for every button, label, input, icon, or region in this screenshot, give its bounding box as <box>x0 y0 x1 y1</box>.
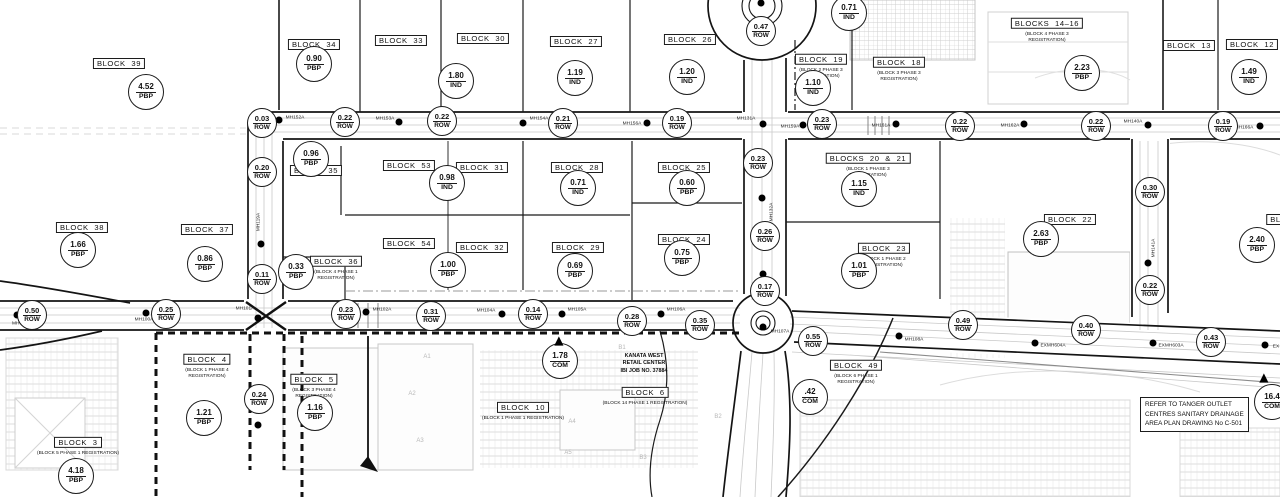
area-value: 1.10 <box>803 79 823 88</box>
flow-arrow-icon: ▶ <box>1257 373 1269 382</box>
area-value: 0.25 <box>157 306 175 315</box>
area-type: IND <box>843 14 855 22</box>
manhole-dot <box>760 324 767 331</box>
area-circle: 0.69PBP <box>557 253 593 289</box>
area-value: 0.22 <box>336 114 354 123</box>
area-type: ROW <box>1142 291 1158 298</box>
area-value: 0.22 <box>433 113 451 122</box>
block-label: BLOCK 12 <box>1226 34 1278 52</box>
manhole-label: MH162A <box>1001 124 1020 129</box>
area-value: 0.43 <box>1202 334 1220 343</box>
area-type: IND <box>853 190 865 198</box>
area-type: PBP <box>304 160 318 168</box>
retail-center-note: KANATA WEST RETAIL CENTER IBI JOB NO. 37… <box>620 353 667 375</box>
area-type: ROW <box>423 317 439 324</box>
building-unit-label: A2 <box>408 391 415 397</box>
area-circle: 0.75PBP <box>664 240 700 276</box>
area-circle: 1.15IND <box>841 171 877 207</box>
area-circle: 4.18PBP <box>58 458 94 494</box>
area-value: 1.49 <box>1239 68 1259 77</box>
area-type: ROW <box>1078 331 1094 338</box>
area-value: 1.19 <box>565 69 585 78</box>
block-label: BLOCK 26 <box>664 29 716 47</box>
block-name: BLOCK 4 <box>183 354 230 365</box>
area-type: IND <box>441 184 453 192</box>
block-registration-note: (BLOCK 14 PHASE 1 REGISTRATION) <box>603 400 688 406</box>
block-label: BLOCK 32 <box>456 237 508 255</box>
block-registration-note: REGISTRATION) <box>873 77 925 83</box>
block-label: BLOCK 4(BLOCK 1 PHASE 4REGISTRATION) <box>183 349 230 380</box>
area-value: 0.50 <box>23 307 41 316</box>
row-circle: 0.55ROW <box>798 326 828 356</box>
row-circle: 0.35ROW <box>685 310 715 340</box>
row-circle: 0.47ROW <box>746 16 776 46</box>
block-name: BLOCK 39 <box>93 58 145 69</box>
manhole-dot <box>255 422 262 429</box>
area-value: 0.60 <box>677 179 697 188</box>
manhole-label: EXMH603A <box>1158 344 1183 349</box>
area-value: 0.47 <box>752 23 770 32</box>
area-type: IND <box>681 78 693 86</box>
area-value: 0.22 <box>951 118 969 127</box>
area-value: 0.69 <box>565 262 585 271</box>
area-type: COM <box>802 398 818 406</box>
area-value: 2.40 <box>1247 236 1267 245</box>
area-type: IND <box>569 79 581 87</box>
area-value: 0.96 <box>301 150 321 159</box>
block-name: BLOCK 32 <box>456 242 508 253</box>
row-circle: 0.03ROW <box>247 108 277 138</box>
row-circle: 0.50ROW <box>17 300 47 330</box>
area-circle: 0.90PBP <box>296 46 332 82</box>
row-circle: 0.25ROW <box>151 299 181 329</box>
manhole-label: MH108A <box>905 338 924 343</box>
area-value: 0.22 <box>1141 282 1159 291</box>
block-label: BLOCK 53 <box>383 155 435 173</box>
area-type: ROW <box>1088 127 1104 134</box>
area-type: ROW <box>757 237 773 244</box>
block-label: BLOCK 33 <box>375 30 427 48</box>
retail-line: IBI JOB NO. 37884 <box>620 368 667 375</box>
manhole-dot <box>1150 340 1157 347</box>
block-label: BLOCK 3(BLOCK 5 PHASE 1 REGISTRATION) <box>37 432 119 456</box>
manhole-label: EXMH604A <box>1040 344 1065 349</box>
block-label: BLOCK 31 <box>456 157 508 175</box>
area-value: 1.20 <box>677 68 697 77</box>
area-value: 1.21 <box>194 409 214 418</box>
row-circle: 0.19ROW <box>662 108 692 138</box>
block-name: BLOCK 11 <box>1266 214 1280 225</box>
row-circle: 0.49ROW <box>948 310 978 340</box>
block-label: BLOCK 39 <box>93 53 145 71</box>
manhole-dot <box>499 311 506 318</box>
area-circle: 0.86PBP <box>187 246 223 282</box>
flow-arrow-icon: ▶ <box>552 336 564 345</box>
block-registration-note: (BLOCK 6 PHASE 1 <box>830 373 882 379</box>
manhole-label: MH161A <box>872 124 891 129</box>
area-value: 0.11 <box>253 271 271 280</box>
area-type: ROW <box>669 124 685 131</box>
area-type: PBP <box>568 272 582 280</box>
manhole-label: MH119A <box>257 213 262 231</box>
row-circle: 0.20ROW <box>247 157 277 187</box>
manhole-label: MH101A <box>236 307 255 312</box>
block-name: BLOCK 10 <box>497 402 549 413</box>
manhole-dot <box>1021 121 1028 128</box>
area-value: 0.19 <box>668 115 686 124</box>
area-type: PBP <box>441 271 455 279</box>
manhole-label: MH140A <box>1124 120 1143 125</box>
area-value: 0.98 <box>437 174 457 183</box>
block-name: BLOCK 37 <box>181 224 233 235</box>
block-label: BLOCK 10(BLOCK 1 PHASE 1 REGISTRATION) <box>482 397 564 421</box>
area-value: 0.23 <box>337 306 355 315</box>
block-name: BLOCK 13 <box>1163 40 1215 51</box>
block-name: BLOCK 31 <box>456 162 508 173</box>
area-value: 0.71 <box>839 4 859 13</box>
area-type: ROW <box>525 315 541 322</box>
block-name: BLOCK 54 <box>383 238 435 249</box>
area-type: ROW <box>337 123 353 130</box>
block-name: BLOCK 5 <box>290 374 337 385</box>
area-circle: 1.20IND <box>669 59 705 95</box>
area-type: ROW <box>555 124 571 131</box>
block-name: BLOCKS 14–16 <box>1011 18 1083 29</box>
area-circle: 1.78COM <box>542 343 578 379</box>
area-circle: 1.16PBP <box>297 395 333 431</box>
building-unit-label: A1 <box>423 354 430 360</box>
area-type: ROW <box>254 173 270 180</box>
area-value: 0.31 <box>422 308 440 317</box>
area-value: 1.00 <box>438 261 458 270</box>
area-value: 0.49 <box>954 317 972 326</box>
block-label: BLOCK 13 <box>1163 35 1215 53</box>
building-unit-label: B3 <box>639 455 646 461</box>
area-type: PBP <box>139 93 153 101</box>
building-unit-label: B2 <box>714 414 721 420</box>
area-type: ROW <box>254 124 270 131</box>
block-registration-note: REGISTRATION) <box>183 374 230 380</box>
area-type: COM <box>1264 403 1280 411</box>
manhole-label: MH152A <box>286 116 305 121</box>
area-type: PBP <box>289 273 303 281</box>
row-circle: 0.40ROW <box>1071 315 1101 345</box>
manhole-dot <box>800 122 807 129</box>
area-value: 0.26 <box>756 228 774 237</box>
area-type: ROW <box>955 326 971 333</box>
area-circle: 0.71IND <box>560 170 596 206</box>
block-label: BLOCK 6(BLOCK 14 PHASE 1 REGISTRATION) <box>603 382 688 406</box>
area-type: ROW <box>158 315 174 322</box>
area-type: PBP <box>197 419 211 427</box>
area-type: PBP <box>1250 246 1264 254</box>
row-circle: 0.24ROW <box>244 384 274 414</box>
row-circle: 0.31ROW <box>416 301 446 331</box>
area-value: 0.17 <box>756 283 774 292</box>
area-type: PBP <box>675 259 689 267</box>
block-registration-note: (BLOCK 1 PHASE 1 REGISTRATION) <box>482 415 564 421</box>
area-type: PBP <box>1034 240 1048 248</box>
block-label: BLOCK 49(BLOCK 6 PHASE 1REGISTRATION) <box>830 355 882 386</box>
note-line: CENTRES SANITARY DRAINAGE <box>1145 410 1244 420</box>
area-value: 0.03 <box>253 115 271 124</box>
area-value: 0.28 <box>623 313 641 322</box>
area-type: ROW <box>814 125 830 132</box>
building-unit-label: B1 <box>618 345 625 351</box>
area-value: 1.66 <box>68 241 88 250</box>
area-value: 16.4 <box>1262 393 1280 402</box>
area-value: 4.52 <box>136 83 156 92</box>
area-circle: 4.52PBP <box>128 74 164 110</box>
block-registration-note: (BLOCK 1 PHASE 4 <box>183 367 230 373</box>
block-name: BLOCK 12 <box>1226 39 1278 50</box>
area-type: ROW <box>1215 127 1231 134</box>
area-value: 1.01 <box>849 262 869 271</box>
block-name: BLOCK 23 <box>858 243 910 254</box>
block-label: BLOCK 11 <box>1266 209 1280 227</box>
block-name: BLOCK 6 <box>621 387 668 398</box>
manhole-dot <box>1032 340 1039 347</box>
area-type: ROW <box>952 127 968 134</box>
area-type: ROW <box>624 322 640 329</box>
area-type: PBP <box>71 251 85 259</box>
row-circle: 0.17ROW <box>750 276 780 306</box>
manhole-label: MH131A <box>737 117 756 122</box>
block-label: BLOCKS 14–16(BLOCK 4 PHASE 3REGISTRATION… <box>1011 13 1083 44</box>
block-name: BLOCK 36 <box>310 256 362 267</box>
area-type: ROW <box>434 122 450 129</box>
area-circle: 2.23PBP <box>1064 55 1100 91</box>
block-name: BLOCK 29 <box>552 242 604 253</box>
area-value: 0.24 <box>250 391 268 400</box>
drainage-area-plan: REFER TO TANGER OUTLET CENTRES SANITARY … <box>0 0 1280 497</box>
manhole-label: MH159A <box>781 125 800 130</box>
block-label: BLOCK 54 <box>383 233 435 251</box>
manhole-label: MH141A <box>1152 239 1157 258</box>
manhole-dot <box>893 121 900 128</box>
block-registration-note: REGISTRATION) <box>830 380 882 386</box>
block-label: BLOCK 37 <box>181 219 233 237</box>
area-value: 1.80 <box>446 72 466 81</box>
building-unit-label: A3 <box>416 438 423 444</box>
block-label: BLOCK 18(BLOCK 3 PHASE 3REGISTRATION) <box>873 52 925 83</box>
area-value: 0.40 <box>1077 322 1095 331</box>
area-type: ROW <box>757 292 773 299</box>
block-name: BLOCKS 20 & 21 <box>826 153 911 164</box>
block-label: BLOCK 30 <box>457 28 509 46</box>
block-name: BLOCK 26 <box>664 34 716 45</box>
block-name: BLOCK 3 <box>54 437 101 448</box>
area-type: IND <box>572 189 584 197</box>
row-circle: 0.23ROW <box>331 299 361 329</box>
area-value: 4.18 <box>66 467 86 476</box>
area-type: PBP <box>680 189 694 197</box>
retail-line: RETAIL CENTER <box>620 360 667 367</box>
manhole-dot <box>1145 260 1152 267</box>
row-circle: 0.19ROW <box>1208 111 1238 141</box>
area-type: PBP <box>852 272 866 280</box>
area-circle: 1.49IND <box>1231 59 1267 95</box>
area-value: 0.55 <box>804 333 822 342</box>
manhole-label: MH102A <box>373 308 392 313</box>
block-name: BLOCK 33 <box>375 35 427 46</box>
area-value: 0.20 <box>253 164 271 173</box>
area-type: ROW <box>251 400 267 407</box>
area-circle: 0.60PBP <box>669 170 705 206</box>
manhole-label: MH106A <box>667 308 686 313</box>
area-value: 0.14 <box>524 306 542 315</box>
block-registration-note: (BLOCK 4 PHASE 1 <box>310 269 362 275</box>
area-value: 0.21 <box>554 115 572 124</box>
row-circle: 0.22ROW <box>1081 111 1111 141</box>
area-type: IND <box>450 82 462 90</box>
area-type: COM <box>552 362 568 370</box>
building-unit-label: A5 <box>564 450 571 456</box>
area-circle: .42COM <box>792 379 828 415</box>
area-circle: 0.98IND <box>429 165 465 201</box>
block-name: BLOCK 27 <box>550 36 602 47</box>
area-type: ROW <box>1142 193 1158 200</box>
area-type: ROW <box>750 164 766 171</box>
area-value: 0.90 <box>304 55 324 64</box>
row-circle: 0.23ROW <box>807 109 837 139</box>
block-registration-note: (BLOCK 4 PHASE 3 <box>1011 31 1083 37</box>
row-circle: 0.21ROW <box>548 108 578 138</box>
manhole-label: MH107A <box>771 330 790 335</box>
note-box: REFER TO TANGER OUTLET CENTRES SANITARY … <box>1140 397 1249 432</box>
row-circle: 0.30ROW <box>1135 177 1165 207</box>
manhole-dot <box>255 315 262 322</box>
area-type: PBP <box>198 265 212 273</box>
manhole-label: MH153A <box>376 117 395 122</box>
manhole-dot <box>760 121 767 128</box>
area-type: IND <box>1243 78 1255 86</box>
area-type: ROW <box>338 315 354 322</box>
block-registration-note: (BLOCK 5 PHASE 1 REGISTRATION) <box>37 450 119 456</box>
manhole-dot <box>644 120 651 127</box>
block-registration-note: (BLOCK 3 PHASE 4 <box>290 387 337 393</box>
row-circle: 0.22ROW <box>1135 275 1165 305</box>
row-circle: 0.43ROW <box>1196 327 1226 357</box>
manhole-label: MH105A <box>568 308 587 313</box>
manhole-label: MH154A <box>530 117 549 122</box>
manhole-label: MH132A <box>770 203 775 222</box>
manhole-label: MH156A <box>623 122 642 127</box>
area-type: ROW <box>254 280 270 287</box>
area-value: 0.35 <box>691 317 709 326</box>
row-circle: 0.26ROW <box>750 221 780 251</box>
area-value: 2.63 <box>1031 230 1051 239</box>
row-circle: 0.23ROW <box>743 148 773 178</box>
area-circle: 0.96PBP <box>293 141 329 177</box>
area-value: 0.23 <box>749 155 767 164</box>
row-circle: 0.22ROW <box>330 107 360 137</box>
area-value: 0.23 <box>813 116 831 125</box>
manhole-dot <box>759 195 766 202</box>
manhole-dot <box>1145 122 1152 129</box>
block-registration-note: (BLOCK 3 PHASE 3 <box>873 70 925 76</box>
row-circle: 0.14ROW <box>518 299 548 329</box>
block-registration-note: REGISTRATION) <box>310 276 362 282</box>
area-value: 0.22 <box>1087 118 1105 127</box>
area-value: 1.78 <box>550 352 570 361</box>
area-value: 0.30 <box>1141 184 1159 193</box>
manhole-dot <box>396 119 403 126</box>
manhole-dot <box>520 120 527 127</box>
area-value: 0.75 <box>672 249 692 258</box>
area-type: ROW <box>1203 343 1219 350</box>
manhole-label: EX <box>1273 345 1279 350</box>
row-circle: 0.22ROW <box>945 111 975 141</box>
manhole-dot <box>896 333 903 340</box>
area-type: PBP <box>307 65 321 73</box>
retail-line: KANATA WEST <box>620 353 667 360</box>
block-registration-note: (BLOCK 1 PHASE 3 <box>826 166 911 172</box>
manhole-dot <box>1257 123 1264 130</box>
row-circle: 0.22ROW <box>427 106 457 136</box>
area-circle: 0.33PBP <box>278 254 314 290</box>
area-circle: 2.63PBP <box>1023 221 1059 257</box>
area-circle: 1.80IND <box>438 63 474 99</box>
building-unit-label: A4 <box>568 419 575 425</box>
area-type: ROW <box>24 316 40 323</box>
row-circle: 0.28ROW <box>617 306 647 336</box>
manhole-dot <box>363 309 370 316</box>
area-circle: 1.19IND <box>557 60 593 96</box>
note-line: REFER TO TANGER OUTLET <box>1145 400 1244 410</box>
manhole-label: MH100A <box>135 318 154 323</box>
block-label: BLOCK 27 <box>550 31 602 49</box>
area-type: PBP <box>1075 74 1089 82</box>
manhole-dot <box>143 310 150 317</box>
block-name: BLOCK 30 <box>457 33 509 44</box>
area-type: PBP <box>69 477 83 485</box>
block-name: BLOCK 18 <box>873 57 925 68</box>
area-value: 0.33 <box>286 263 306 272</box>
area-type: ROW <box>753 32 769 39</box>
area-circle: 1.66PBP <box>60 232 96 268</box>
area-circle: 1.00PBP <box>430 252 466 288</box>
note-line: AREA PLAN DRAWING No C-501 <box>1145 419 1244 429</box>
area-circle: 1.01PBP <box>841 253 877 289</box>
manhole-dot <box>658 311 665 318</box>
area-value: 0.71 <box>568 179 588 188</box>
manhole-dot <box>258 241 265 248</box>
row-circle: 0.11ROW <box>247 264 277 294</box>
area-circle: 1.21PBP <box>186 400 222 436</box>
area-value: 1.15 <box>849 180 869 189</box>
area-circle: 2.40PBP <box>1239 227 1275 263</box>
area-value: 1.16 <box>305 404 325 413</box>
area-value: .42 <box>802 388 817 397</box>
block-label: BLOCK 36(BLOCK 4 PHASE 1REGISTRATION) <box>310 251 362 282</box>
area-value: 0.19 <box>1214 118 1232 127</box>
area-value: 0.86 <box>195 255 215 264</box>
area-type: PBP <box>308 414 322 422</box>
area-type: ROW <box>805 342 821 349</box>
area-circle: 1.10IND <box>795 70 831 106</box>
manhole-dot <box>559 311 566 318</box>
manhole-label: MH104A <box>477 309 496 314</box>
block-name: BLOCK 19 <box>795 54 847 65</box>
area-value: 2.23 <box>1072 64 1092 73</box>
area-type: ROW <box>692 326 708 333</box>
block-name: BLOCK 49 <box>830 360 882 371</box>
block-registration-note: REGISTRATION) <box>1011 38 1083 44</box>
block-name: BLOCK 53 <box>383 160 435 171</box>
area-type: IND <box>807 89 819 97</box>
manhole-dot <box>1262 342 1269 349</box>
